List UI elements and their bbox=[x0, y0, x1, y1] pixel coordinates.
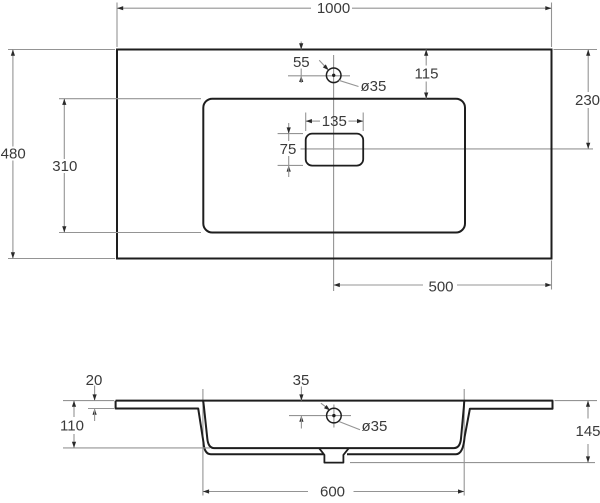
svg-text:500: 500 bbox=[428, 278, 453, 295]
svg-text:1000: 1000 bbox=[317, 0, 350, 17]
svg-text:310: 310 bbox=[52, 158, 77, 175]
svg-text:145: 145 bbox=[575, 423, 600, 440]
svg-text:480: 480 bbox=[1, 146, 26, 163]
svg-text:110: 110 bbox=[60, 418, 84, 435]
svg-text:55: 55 bbox=[293, 54, 310, 71]
svg-text:35: 35 bbox=[293, 372, 310, 389]
svg-text:ø35: ø35 bbox=[362, 418, 388, 435]
svg-text:230: 230 bbox=[575, 92, 600, 109]
svg-text:115: 115 bbox=[415, 66, 439, 83]
svg-text:20: 20 bbox=[86, 372, 103, 389]
svg-text:600: 600 bbox=[320, 483, 345, 500]
svg-text:75: 75 bbox=[280, 141, 297, 158]
svg-text:135: 135 bbox=[322, 113, 347, 130]
svg-text:ø35: ø35 bbox=[361, 78, 387, 95]
